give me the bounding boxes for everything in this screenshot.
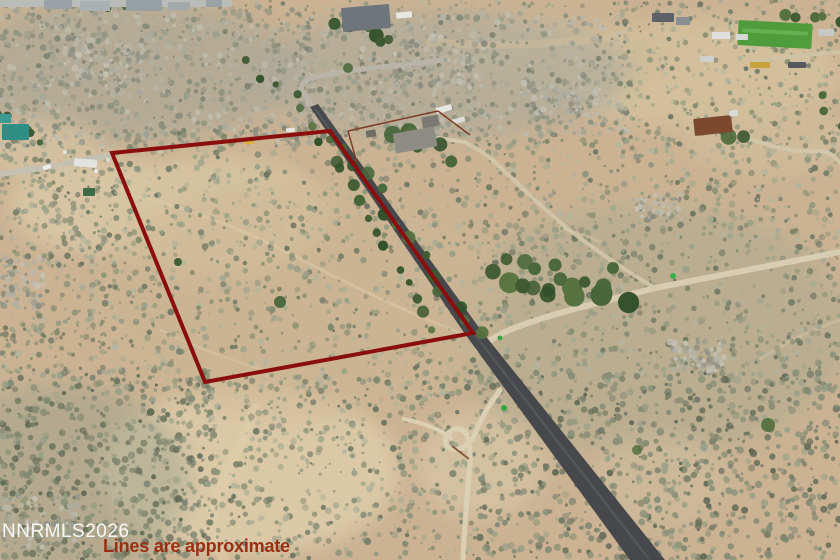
aerial-listing-photo: NNRMLS2026 Lines are approximate	[0, 0, 840, 560]
lines-approximate-label: Lines are approximate	[103, 536, 290, 557]
aerial-photo	[0, 0, 840, 560]
